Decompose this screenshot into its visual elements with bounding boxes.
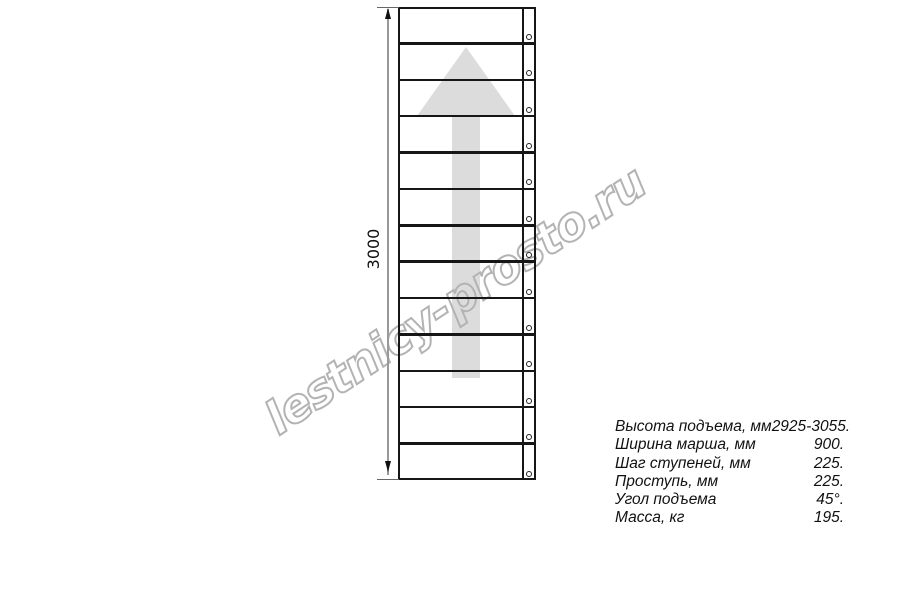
spec-value: 225.: [814, 455, 844, 473]
spec-label: Угол подъема: [615, 491, 716, 509]
bolt-hole-icon: [526, 361, 532, 367]
spec-value: 2925-3055.: [772, 418, 850, 436]
bolt-hole-icon: [526, 471, 532, 477]
bolt-hole-icon: [526, 70, 532, 76]
spec-row: Высота подъема, мм2925-3055.: [615, 418, 844, 436]
spec-label: Ширина марша, мм: [615, 436, 756, 454]
spec-row: Проступь, мм225.: [615, 473, 844, 491]
spec-value: 45°.: [816, 491, 844, 509]
spec-value: 225.: [814, 473, 844, 491]
bolt-hole-icon: [526, 398, 532, 404]
spec-table: Высота подъема, мм2925-3055.Ширина марша…: [615, 418, 844, 528]
bolt-hole-icon: [526, 107, 532, 113]
bolt-hole-icon: [526, 252, 532, 258]
spec-label: Шаг ступеней, мм: [615, 455, 751, 473]
dimension-arrow-down-icon: [385, 461, 391, 472]
dimension-arrow-up-icon: [385, 8, 391, 19]
bolt-hole-icon: [526, 143, 532, 149]
bolt-holes: [400, 9, 534, 478]
bolt-hole-icon: [526, 179, 532, 185]
spec-row: Ширина марша, мм900.: [615, 436, 844, 454]
spec-label: Проступь, мм: [615, 473, 718, 491]
spec-row: Шаг ступеней, мм225.: [615, 455, 844, 473]
spec-value: 900.: [814, 436, 844, 454]
bolt-hole-icon: [526, 434, 532, 440]
bolt-hole-icon: [526, 325, 532, 331]
spec-label: Высота подъема, мм: [615, 418, 772, 436]
stair-flight-outline: [398, 7, 536, 480]
spec-row: Масса, кг195.: [615, 509, 844, 527]
dimension-label: 3000: [365, 221, 383, 277]
spec-row: Угол подъема45°.: [615, 491, 844, 509]
bolt-hole-icon: [526, 34, 532, 40]
dimension-line: [387, 9, 389, 475]
spec-label: Масса, кг: [615, 509, 684, 527]
bolt-hole-icon: [526, 289, 532, 295]
extension-line-bottom: [377, 479, 399, 481]
spec-value: 195.: [814, 509, 844, 527]
bolt-hole-icon: [526, 216, 532, 222]
stair-drawing-canvas: lestnicy-prosto.ru 3000 Высота подъема, …: [0, 0, 900, 600]
